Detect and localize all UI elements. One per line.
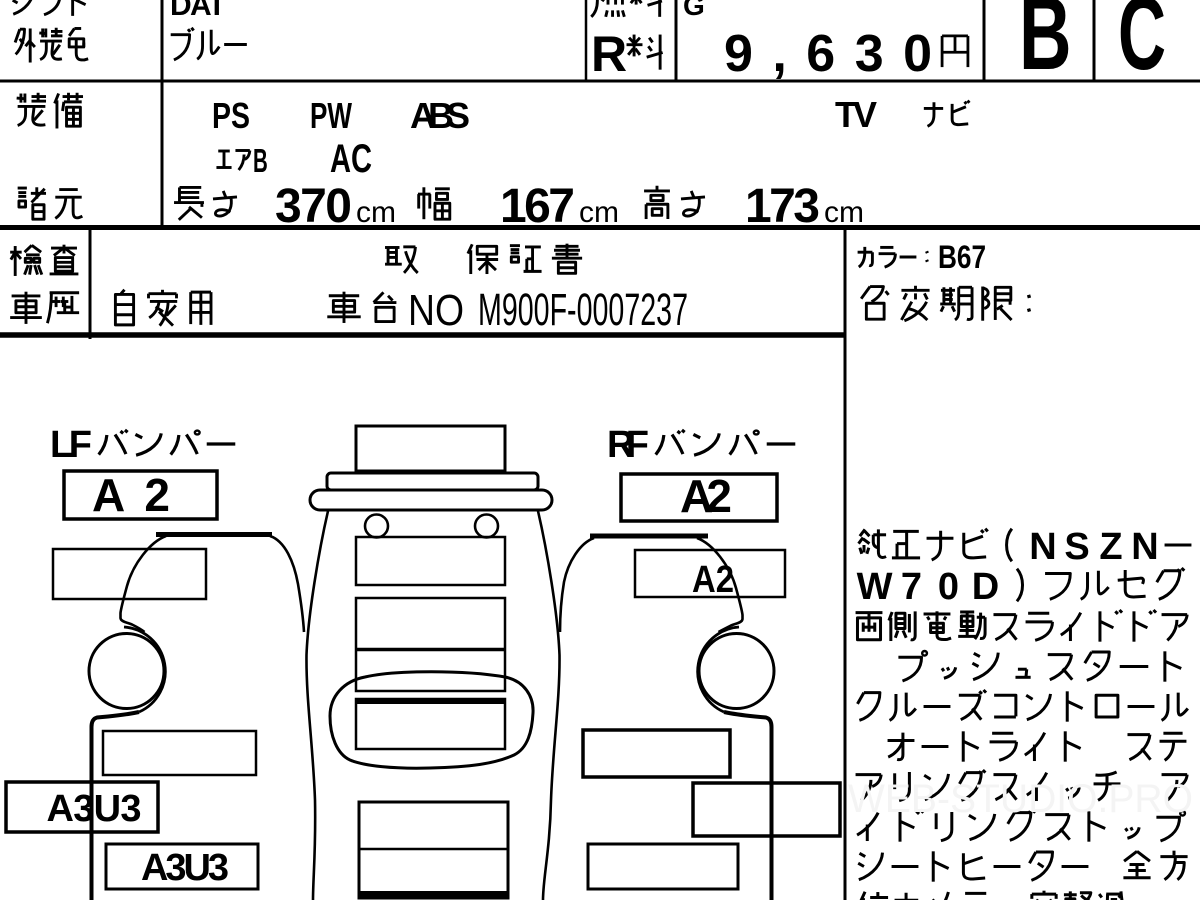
svg-text:D: D — [972, 566, 999, 608]
svg-text:B: B — [1019, 0, 1072, 92]
svg-text:ABS: ABS — [410, 95, 470, 136]
svg-text:PW: PW — [310, 95, 352, 136]
svg-text:TV: TV — [835, 94, 877, 135]
svg-text:A2: A2 — [680, 470, 732, 522]
svg-text:B: B — [253, 142, 268, 179]
svg-text:Z: Z — [1099, 526, 1122, 568]
svg-text:PS: PS — [212, 95, 250, 136]
svg-text:S: S — [1064, 526, 1089, 568]
svg-text:C: C — [1118, 0, 1166, 92]
svg-text:A3U3: A3U3 — [47, 788, 142, 830]
svg-text:7: 7 — [901, 566, 922, 608]
svg-text:AC: AC — [330, 137, 372, 181]
svg-text:WEB-STUDIO.PRO: WEB-STUDIO.PRO — [848, 777, 1193, 821]
svg-text:LF: LF — [50, 424, 92, 466]
svg-text:RF: RF — [607, 424, 649, 466]
svg-text:0: 0 — [938, 566, 959, 608]
svg-text:DAT: DAT — [170, 0, 226, 22]
svg-text:370: 370 — [275, 180, 352, 233]
svg-text:M900F-0007237: M900F-0007237 — [478, 284, 688, 335]
svg-text:G: G — [683, 0, 705, 21]
svg-text:A3U3: A3U3 — [141, 847, 229, 889]
svg-text:cm: cm — [824, 196, 864, 229]
svg-text:167: 167 — [500, 180, 575, 233]
svg-text:cm: cm — [579, 196, 619, 229]
svg-text:cm: cm — [356, 196, 396, 229]
svg-text:9,630: 9,630 — [724, 25, 932, 83]
svg-text:B67: B67 — [938, 239, 986, 275]
svg-text:NO: NO — [408, 286, 464, 335]
svg-text:N: N — [1131, 526, 1158, 568]
svg-text:A2: A2 — [92, 469, 170, 521]
svg-text:W: W — [857, 566, 893, 608]
svg-text:A2: A2 — [692, 559, 734, 601]
svg-text:R: R — [591, 26, 627, 82]
svg-text:173: 173 — [745, 180, 820, 233]
svg-text:N: N — [1029, 526, 1056, 568]
